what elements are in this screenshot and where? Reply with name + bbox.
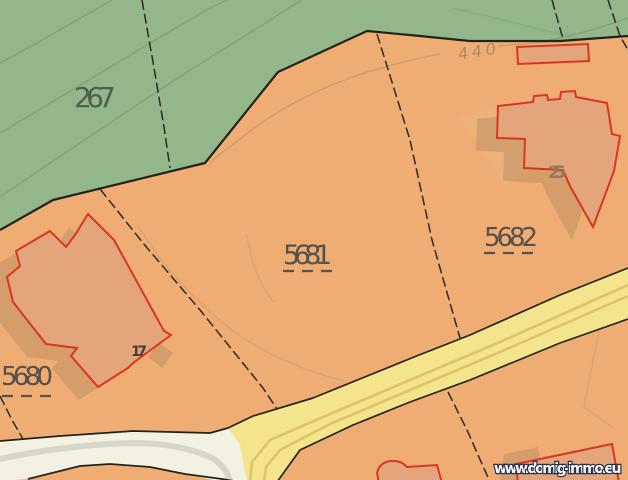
parcel-label-267: 267	[74, 81, 117, 114]
house-number-25: 25	[548, 163, 566, 183]
watermark-text: www.domig-immo.eu	[494, 461, 622, 477]
garage-footprint	[517, 44, 589, 64]
house-number-17: 17	[131, 344, 147, 360]
cadastral-map[interactable]: 267 5680 5681 5682 25 17 440 www.domig-i…	[0, 0, 628, 480]
parcel-label-5681: 5681	[283, 240, 333, 271]
parcel-label-5680: 5680	[1, 362, 54, 392]
parcel-label-5682: 5682	[484, 223, 539, 253]
cadastral-map-viewport[interactable]: 267 5680 5681 5682 25 17 440 www.domig-i…	[0, 0, 628, 480]
